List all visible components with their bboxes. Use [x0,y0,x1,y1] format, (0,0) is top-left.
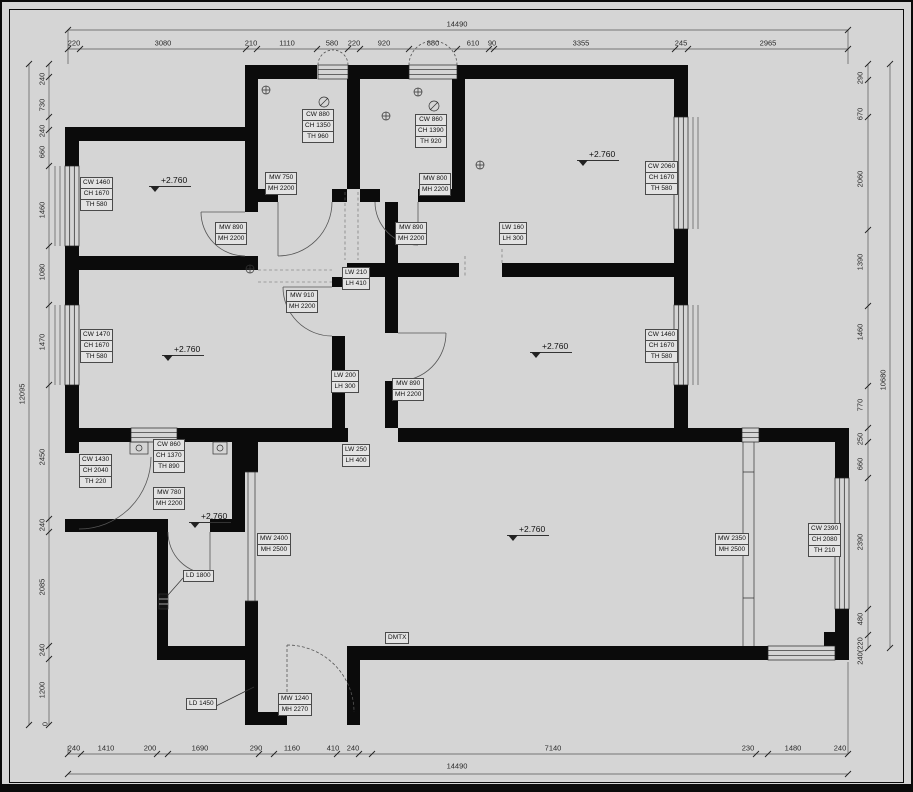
label-line: MW 890 [392,378,424,390]
dim: 290 [856,72,865,85]
label-line: TH 580 [645,183,678,195]
ceiling-mark-icon [476,161,484,169]
dim: 730 [38,99,47,112]
label-line: TH 580 [80,351,113,363]
dim-overall-right: 10680 [879,370,888,391]
label-line: MW 910 [286,290,318,302]
label-line: MW 780 [153,487,185,499]
label-line: LD 1450 [186,698,217,710]
dim: 230 [742,744,755,753]
label-line: CH 1390 [415,125,447,137]
label-line: LH 410 [342,278,370,290]
label-line: CW 880 [302,109,334,121]
dim: 240 [38,519,47,532]
label-line: MH 2200 [153,498,185,510]
label-line: MH 2200 [265,183,297,195]
drain-icon [319,97,329,107]
label-line: CW 860 [415,114,447,126]
floor-plan-drawing [2,2,913,792]
niche-label: LW 250 LH 400 [342,445,370,467]
drain-icon [429,101,439,111]
label-line: LW 200 [331,370,359,382]
label-line: TH 220 [79,476,112,488]
label-line: MH 2200 [392,389,424,401]
door-label: MW 890 MH 2200 [392,379,424,401]
label-line: MW 750 [265,172,297,184]
dim: 480 [856,613,865,626]
dim: 3080 [155,39,172,48]
label-line: MH 2200 [419,184,451,196]
dim: 1480 [785,744,802,753]
label-line: CW 1430 [79,454,112,466]
washbasin-icon [130,442,148,454]
dim: 220 [348,39,361,48]
dim: 240(220 [856,637,865,665]
level-mark: +2.760 [507,524,549,536]
dim: 240 [38,73,47,86]
label-line: CW 2390 [808,523,841,535]
dim: 3355 [573,39,590,48]
door-label: MW 1240 MH 2270 [278,694,312,716]
dim: 2060 [856,171,865,188]
niche-label: LW 210 LH 410 [342,268,370,290]
level-mark: +2.760 [530,341,572,353]
label-line: CH 1670 [80,188,113,200]
dim: 2390 [856,534,865,551]
window-label: CW 2390 CH 2080 TH 210 [808,524,841,557]
walls [65,65,849,725]
dim: 240 [38,125,47,138]
label-line: MW 2400 [257,533,291,545]
dim: 660 [856,458,865,471]
window-label: CW 860 CH 1370 TH 890 [153,440,185,473]
dim: 2450 [38,449,47,466]
panel-icon [159,594,168,609]
dim: 1200 [38,682,47,699]
dim: 1080 [38,264,47,281]
dmtx-label: DMTX [385,633,409,644]
dim: 240 [347,744,360,753]
door-label: MW 780 MH 2200 [153,488,185,510]
label-line: MH 2500 [715,544,749,556]
label-line: TH 210 [808,545,841,557]
label-line: MW 890 [215,222,247,234]
label-line: MW 890 [395,222,427,234]
niche-label: LW 200 LH 300 [331,371,359,393]
dim: 670 [856,108,865,121]
label-line: TH 920 [415,136,447,148]
dim: 2965 [760,39,777,48]
ceiling-mark-icon [262,86,270,94]
dim: 2085 [38,579,47,596]
window-label: CW 1460 CH 1670 TH 580 [80,178,113,211]
label-line: CH 2040 [79,465,112,477]
dim: 210 [245,39,258,48]
door-label: MW 890 MH 2200 [395,223,427,245]
dim: 250 [856,433,865,446]
dim: 240 [68,744,81,753]
dim-overall-bottom: 14490 [447,762,468,771]
level-mark: +2.760 [577,149,619,161]
label-line: TH 890 [153,461,185,473]
window-label: CW 1430 CH 2040 TH 220 [79,455,112,488]
label-line: MH 2200 [286,301,318,313]
ceiling-mark-icon [246,265,254,273]
label-line: LH 300 [499,233,527,245]
dim: 90 [488,39,496,48]
dim: 1470 [38,334,47,351]
opening-label: MW 2350 MH 2500 [715,534,749,556]
panel-label: LD 1450 [186,699,217,710]
opening-label: MW 2400 MH 2500 [257,534,291,556]
level-mark: +2.760 [149,175,191,187]
label-line: CW 1460 [80,177,113,189]
label-line: CH 1670 [645,340,678,352]
dim: 1110 [279,39,295,48]
dim: 920 [378,39,391,48]
dim: 660 [38,146,47,159]
window-label: CW 880 CH 1350 TH 960 [302,110,334,143]
dim: 1410 [98,744,115,753]
door-label: MW 890 MH 2200 [215,223,247,245]
dim: 410 [327,744,340,753]
dim: 880 [427,39,440,48]
dim: 1390 [856,254,865,271]
label-line: LD 1800 [183,570,214,582]
dim: 1460 [856,324,865,341]
label-line: CH 1350 [302,120,334,132]
door-label: MW 800 MH 2200 [419,174,451,196]
niche-label: LW 160 LH 300 [499,223,527,245]
panel-label: LD 1800 [183,571,214,582]
label-line: CH 1670 [645,172,678,184]
label-line: LW 160 [499,222,527,234]
dim: 610 [467,39,480,48]
window-label: CW 1470 CH 1670 TH 580 [80,330,113,363]
label-line: CW 1470 [80,329,113,341]
dim: 245 [675,39,688,48]
dim: 1690 [192,744,209,753]
level-mark: +2.760 [189,511,231,523]
label-line: CW 2060 [645,161,678,173]
window-label: CW 1460 CH 1670 TH 580 [645,330,678,363]
dim-zero: 0 [41,722,50,726]
dim-overall-top: 14490 [447,20,468,29]
label-line: DMTX [385,632,409,644]
door-label: MW 750 MH 2200 [265,173,297,195]
door-label: MW 910 MH 2200 [286,291,318,313]
window-label: CW 860 CH 1390 TH 920 [415,115,447,148]
label-line: LH 300 [331,381,359,393]
label-line: LW 250 [342,444,370,456]
ceiling-mark-icon [414,88,422,96]
label-line: MH 2200 [215,233,247,245]
dim: 240 [834,744,847,753]
label-line: MH 2200 [395,233,427,245]
ceiling-mark-icon [382,112,390,120]
label-line: TH 960 [302,131,334,143]
label-line: LH 400 [342,455,370,467]
door-swings [79,41,457,712]
label-line: MH 2270 [278,704,312,716]
bottom-border [2,784,911,790]
level-mark: +2.760 [162,344,204,356]
label-line: CH 1670 [80,340,113,352]
label-line: MW 2350 [715,533,749,545]
dim: 290 [250,744,263,753]
label-line: TH 580 [80,199,113,211]
floor-plan-canvas: 14490 220 3080 210 1110 580 220 920 880 … [0,0,913,792]
window-label: CW 2060 CH 1670 TH 580 [645,162,678,195]
label-line: MW 800 [419,173,451,185]
wide-openings [245,442,754,646]
dim: 770 [856,399,865,412]
dim: 1460 [38,202,47,219]
leader-line [168,578,183,595]
dim: 7140 [545,744,562,753]
label-line: CW 1460 [645,329,678,341]
dim: 240 [38,644,47,657]
label-line: MW 1240 [278,693,312,705]
washbasin-icon [213,442,227,454]
label-line: TH 580 [645,351,678,363]
label-line: CW 860 [153,439,185,451]
dim: 200 [144,744,157,753]
label-line: CH 2080 [808,534,841,546]
label-line: LW 210 [342,267,370,279]
dim-overall-left: 12095 [18,384,27,405]
label-line: MH 2500 [257,544,291,556]
label-line: CH 1370 [153,450,185,462]
dim: 220 [68,39,81,48]
dim: 580 [326,39,339,48]
dim: 1160 [284,744,300,753]
